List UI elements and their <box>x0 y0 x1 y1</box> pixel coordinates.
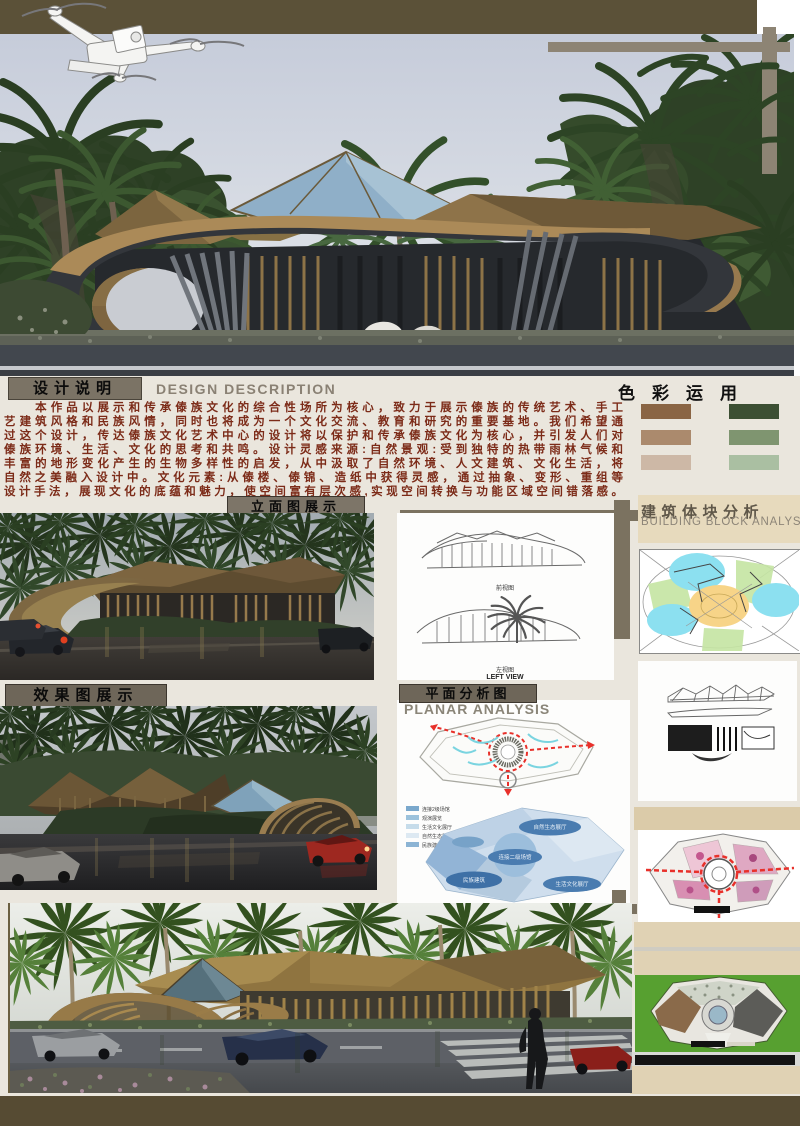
svg-text:自然生态展厅: 自然生态展厅 <box>533 823 567 831</box>
svg-text:连接2级场馆: 连接2级场馆 <box>422 806 450 813</box>
svg-text:生活文化展厅: 生活文化展厅 <box>422 824 452 831</box>
svg-text:连接二级场馆: 连接二级场馆 <box>498 853 532 861</box>
svg-text:LEFT VIEW: LEFT VIEW <box>486 674 524 680</box>
svg-text:民族建筑: 民族建筑 <box>463 876 486 884</box>
svg-text:前视图: 前视图 <box>496 584 514 592</box>
svg-text:生活文化展厅: 生活文化展厅 <box>555 880 589 888</box>
svg-text:左视图: 左视图 <box>496 666 514 674</box>
svg-text:观演展览: 观演展览 <box>422 815 442 822</box>
